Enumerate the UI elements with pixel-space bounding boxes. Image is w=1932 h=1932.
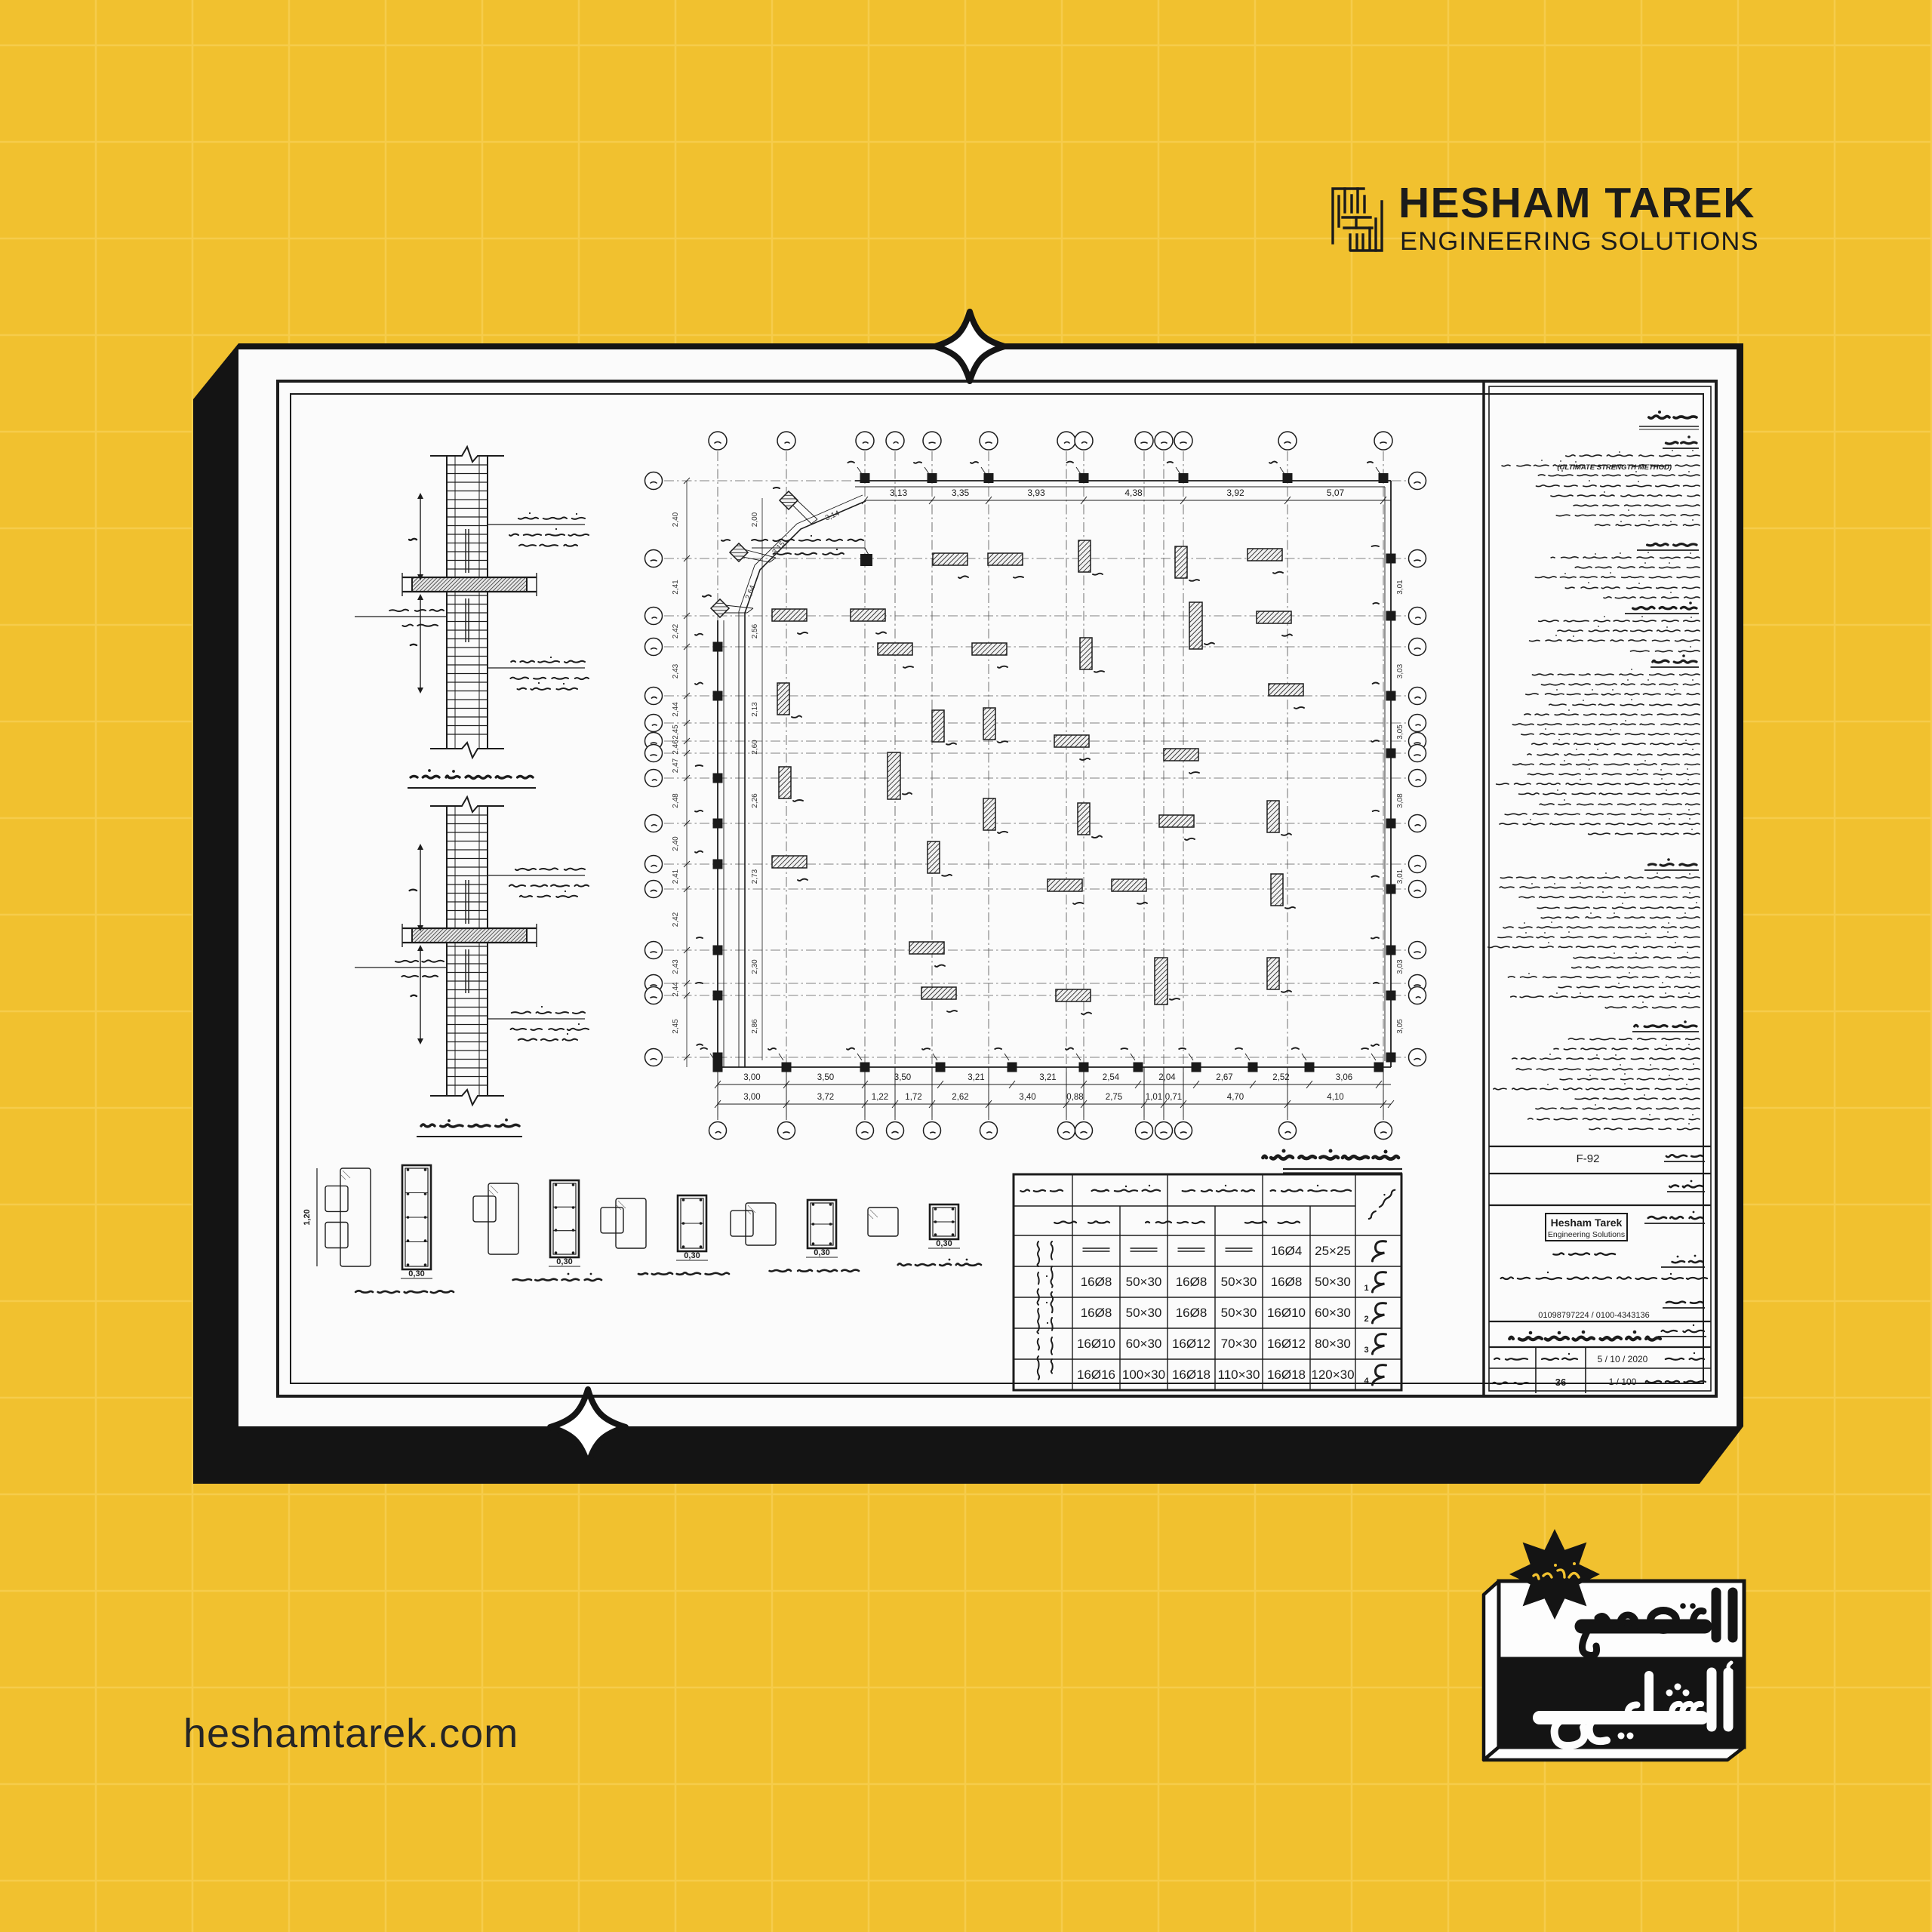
svg-text:3,72: 3,72 [817,1093,834,1102]
svg-text:0,30: 0,30 [684,1251,700,1260]
svg-text:2,62: 2,62 [952,1093,968,1102]
svg-text:4,70: 4,70 [1227,1093,1244,1102]
svg-text:2: 2 [1364,1315,1368,1324]
svg-text:2,43: 2,43 [672,663,680,678]
svg-text:2,75: 2,75 [1106,1093,1122,1102]
svg-text:16Ø8: 16Ø8 [1081,1275,1112,1289]
svg-text:3,50: 3,50 [894,1073,911,1082]
svg-text:3,05: 3,05 [1396,724,1404,740]
svg-text:3,50: 3,50 [817,1073,834,1082]
svg-text:3: 3 [1364,1346,1368,1355]
svg-text:16Ø8: 16Ø8 [1081,1306,1112,1320]
svg-text:Hesham Tarek: Hesham Tarek [1551,1217,1623,1229]
svg-text:16Ø12: 16Ø12 [1267,1337,1306,1351]
svg-text:16Ø8: 16Ø8 [1176,1306,1207,1320]
svg-text:16Ø4: 16Ø4 [1271,1244,1303,1258]
svg-text:100×30: 100×30 [1122,1367,1165,1382]
svg-text:0,30: 0,30 [556,1257,572,1266]
svg-text:2,44: 2,44 [672,982,680,997]
svg-text:heshamtarek.com: heshamtarek.com [183,1711,518,1756]
svg-text:3,03: 3,03 [1396,959,1404,974]
svg-text:3,93: 3,93 [1027,488,1045,498]
svg-text:16Ø12: 16Ø12 [1172,1337,1211,1351]
svg-text:2,43: 2,43 [672,959,680,974]
svg-text:3,01: 3,01 [1396,869,1404,884]
svg-text:3,40: 3,40 [1019,1093,1035,1102]
svg-text:2,42: 2,42 [672,912,680,927]
svg-text:4: 4 [1364,1377,1369,1386]
svg-text:Engineering Solutions: Engineering Solutions [1548,1230,1625,1239]
svg-text:25×25: 25×25 [1315,1244,1351,1258]
svg-text:2,41: 2,41 [672,580,680,595]
svg-text:2,41: 2,41 [672,869,680,884]
svg-text:2,40: 2,40 [672,512,680,527]
svg-text:0,30: 0,30 [936,1239,952,1248]
svg-text:0,30: 0,30 [408,1269,424,1278]
svg-text:2,52: 2,52 [1272,1073,1289,1082]
svg-text:16Ø16: 16Ø16 [1077,1367,1115,1382]
svg-text:16Ø8: 16Ø8 [1176,1275,1207,1289]
svg-text:2,67: 2,67 [1216,1073,1232,1082]
svg-text:3,00: 3,00 [743,1093,760,1102]
svg-text:50×30: 50×30 [1315,1275,1351,1289]
svg-text:(ULTIMATE STRENGTH METHOD): (ULTIMATE STRENGTH METHOD) [1557,463,1672,472]
svg-text:60×30: 60×30 [1315,1306,1351,1320]
svg-text:ENGINEERING SOLUTIONS: ENGINEERING SOLUTIONS [1400,227,1759,256]
svg-text:2,40: 2,40 [672,836,680,851]
svg-text:4,38: 4,38 [1124,488,1143,498]
svg-text:2,73: 2,73 [751,869,759,884]
svg-text:2,45: 2,45 [672,724,680,740]
svg-text:2,45: 2,45 [672,1019,680,1034]
svg-text:1,72: 1,72 [905,1093,921,1102]
svg-text:50×30: 50×30 [1221,1306,1257,1320]
svg-text:70×30: 70×30 [1221,1337,1257,1351]
svg-text:F-92: F-92 [1577,1152,1600,1165]
svg-text:1,22: 1,22 [872,1093,888,1102]
svg-text:50×30: 50×30 [1126,1275,1162,1289]
svg-text:50×30: 50×30 [1221,1275,1257,1289]
svg-text:2,44: 2,44 [672,702,680,717]
svg-text:3,13: 3,13 [890,488,908,498]
svg-text:2,04: 2,04 [1158,1073,1176,1082]
svg-text:5,07: 5,07 [1327,488,1345,498]
svg-text:16Ø10: 16Ø10 [1077,1337,1115,1351]
svg-text:0,30: 0,30 [814,1248,829,1257]
svg-text:1,01: 1,01 [1146,1093,1162,1102]
svg-text:16Ø10: 16Ø10 [1267,1306,1306,1320]
svg-text:16Ø8: 16Ø8 [1271,1275,1303,1289]
svg-text:3,03: 3,03 [1396,663,1404,678]
svg-text:0,71: 0,71 [1165,1093,1182,1102]
svg-text:50×30: 50×30 [1126,1306,1162,1320]
svg-text:2,42: 2,42 [672,623,680,638]
svg-text:110×30: 110×30 [1218,1367,1260,1382]
svg-text:2,60: 2,60 [751,740,759,755]
svg-text:2,47: 2,47 [672,758,680,773]
svg-text:2,48: 2,48 [672,793,680,808]
svg-text:80×30: 80×30 [1315,1337,1351,1351]
svg-text:3,92: 3,92 [1226,488,1244,498]
svg-text:2,46: 2,46 [672,740,680,755]
svg-text:36: 36 [1555,1377,1566,1388]
svg-text:3,06: 3,06 [1336,1073,1352,1082]
svg-text:5 / 10 / 2020: 5 / 10 / 2020 [1598,1354,1648,1364]
svg-text:3,05: 3,05 [1396,1019,1404,1034]
svg-text:3,21: 3,21 [968,1073,984,1082]
svg-text:4,10: 4,10 [1327,1093,1343,1102]
svg-text:01098797224 / 0100-4343136: 01098797224 / 0100-4343136 [1538,1311,1649,1320]
svg-text:1,20: 1,20 [303,1209,312,1225]
svg-text:3,00: 3,00 [743,1073,760,1082]
svg-text:16Ø18: 16Ø18 [1172,1367,1211,1382]
svg-text:60×30: 60×30 [1126,1337,1162,1351]
svg-text:2,26: 2,26 [751,793,759,808]
svg-text:2,30: 2,30 [751,959,759,974]
svg-text:3,01: 3,01 [1396,580,1404,595]
svg-text:120×30: 120×30 [1311,1367,1354,1382]
svg-text:2,13: 2,13 [751,702,759,717]
svg-text:2,86: 2,86 [751,1019,759,1034]
svg-text:16Ø18: 16Ø18 [1267,1367,1306,1382]
svg-text:2,56: 2,56 [751,623,759,638]
svg-text:3,08: 3,08 [1396,793,1404,808]
svg-text:3,21: 3,21 [1039,1073,1056,1082]
svg-text:1 / 100: 1 / 100 [1609,1377,1637,1387]
svg-text:2,54: 2,54 [1103,1073,1120,1082]
svg-text:3,35: 3,35 [952,488,970,498]
svg-text:HESHAM TAREK: HESHAM TAREK [1398,179,1755,227]
svg-text:2,00: 2,00 [751,512,759,527]
svg-text:1: 1 [1364,1284,1368,1293]
